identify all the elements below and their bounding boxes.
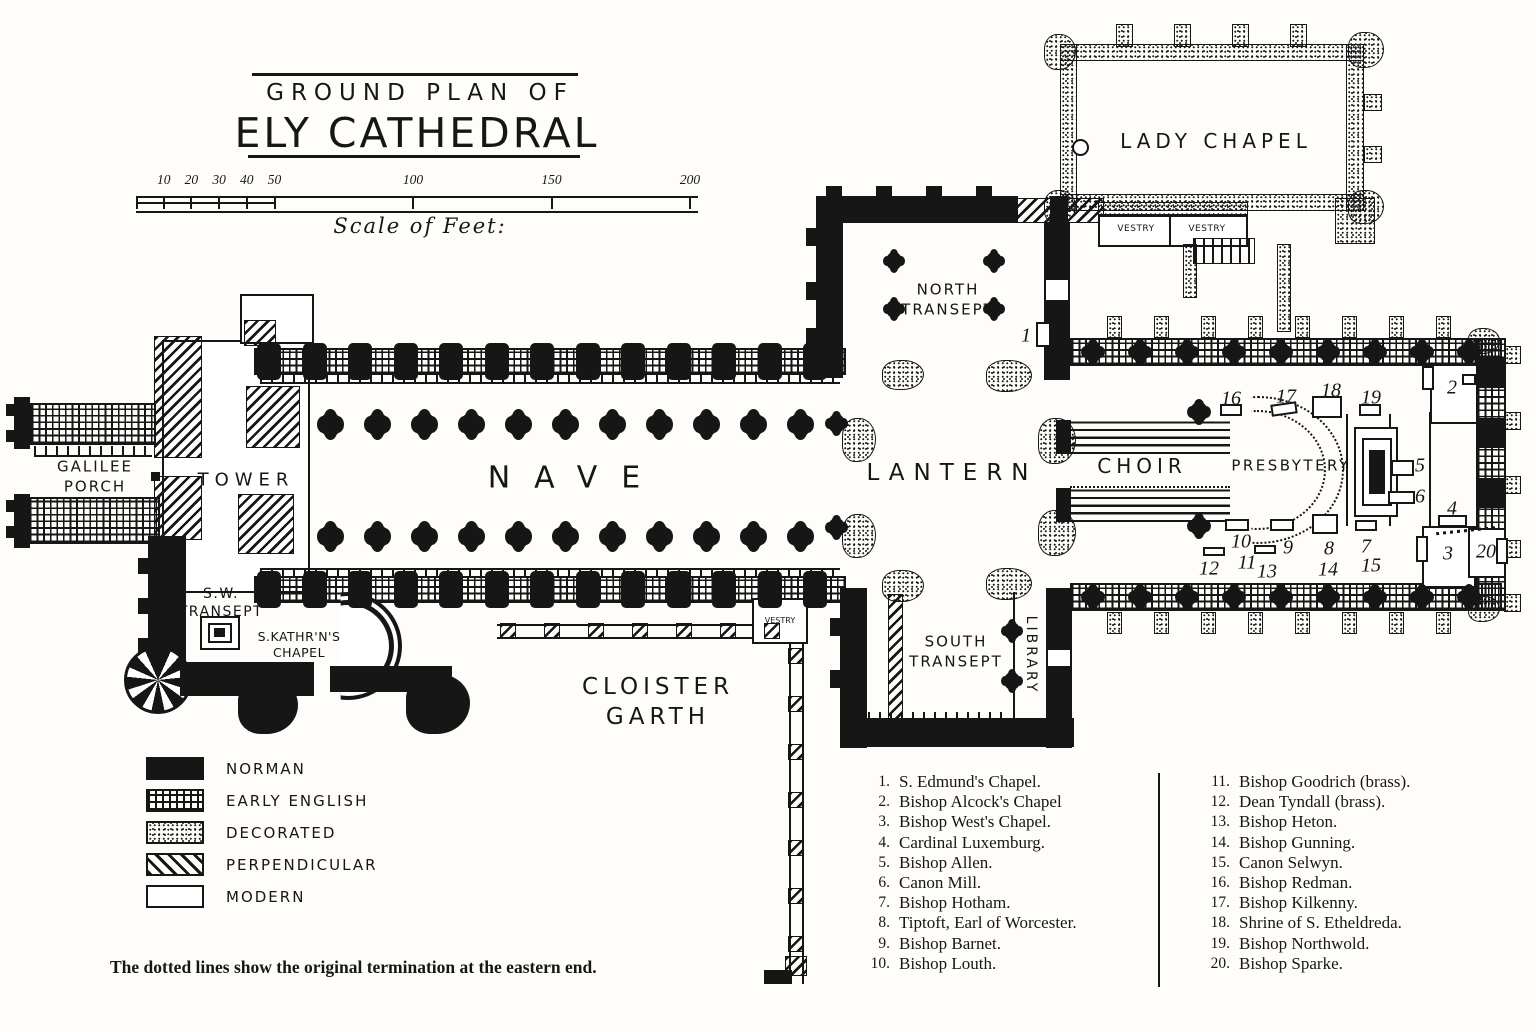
plan-wall-shape (888, 594, 903, 724)
plan-wall-shape (1044, 278, 1070, 302)
plan-wall-shape (1422, 366, 1434, 390)
cloister-wall-block (788, 888, 804, 904)
monument-row: 13.Bishop Heton. (1192, 812, 1528, 832)
plan-wall-shape (6, 430, 16, 442)
plan-wall-shape (1072, 139, 1089, 156)
choir-wall-pier (1413, 587, 1431, 607)
choir-wall-pier (1272, 587, 1290, 607)
plan-wall-shape (806, 228, 818, 246)
nave-buttress (621, 343, 645, 380)
choir-wall-pier (1084, 587, 1102, 607)
plan-wall-shape (886, 300, 902, 318)
choir-wall-pier (1460, 587, 1478, 607)
cloister-wall-block (788, 648, 804, 664)
plan-marker-2: 2 (1447, 377, 1457, 400)
room-label-cloister-garth: CLOISTER GARTH (582, 673, 734, 733)
plan-wall-shape (886, 252, 902, 270)
cloister-wall-block (676, 623, 692, 639)
nave-buttress (667, 343, 691, 380)
plan-wall-shape (1060, 44, 1364, 61)
cloister-wall-block (788, 792, 804, 808)
plan-wall-shape (1416, 536, 1428, 562)
plan-wall-shape (6, 404, 16, 416)
monument-name: Bishop Goodrich (brass). (1239, 772, 1410, 792)
choir-buttress (1248, 612, 1263, 634)
plan-wall-shape (1038, 418, 1076, 464)
plan-marker-5: 5 (1415, 455, 1425, 478)
plan-wall-shape (816, 196, 1018, 223)
room-label-nave: NAVE (488, 459, 665, 498)
plan-wall-shape (876, 186, 892, 198)
nave-buttress (712, 571, 736, 608)
plan-marker-3: 3 (1443, 543, 1453, 566)
plan-marker-19: 19 (1361, 387, 1381, 410)
plan-wall-shape (1038, 510, 1076, 556)
nave-column (743, 412, 764, 437)
plan-wall-shape (238, 678, 298, 734)
room-label-lady-chapel: LADY CHAPEL (1120, 128, 1312, 154)
plan-marker-20: 20 (1476, 541, 1496, 564)
plan-wall-shape (30, 403, 156, 445)
plan-wall-shape (1004, 672, 1020, 690)
nave-buttress (439, 571, 463, 608)
plan-wall-shape (1193, 238, 1255, 264)
monument-name: Bishop Kilkenny. (1239, 893, 1358, 913)
plan-wall-shape (1174, 24, 1191, 47)
plan-wall-shape (1391, 460, 1414, 476)
room-label-tower: TOWER (198, 468, 295, 491)
legend-row: DECORATED (146, 821, 378, 844)
plan-wall-shape (1462, 374, 1476, 385)
plan-wall-shape (14, 494, 30, 548)
choir-buttress (1201, 316, 1216, 338)
choir-buttress (1107, 612, 1122, 634)
room-label-vestry-cloister: VESTRY (765, 616, 795, 626)
plan-wall-shape (830, 618, 842, 636)
plan-wall-shape (986, 360, 1032, 392)
nave-buttress (485, 571, 509, 608)
monument-number: 12. (1192, 792, 1239, 812)
monument-number: 14. (1192, 833, 1239, 853)
choir-buttress (1154, 316, 1169, 338)
monument-name: Bishop Barnet. (899, 934, 1001, 954)
nave-column (790, 412, 811, 437)
plan-wall-shape (830, 670, 842, 688)
plan-wall-shape (138, 598, 150, 614)
plan-wall-shape (1346, 44, 1364, 211)
nave-column (367, 412, 388, 437)
monument-name: Canon Mill. (899, 873, 981, 893)
choir-buttress (1295, 316, 1310, 338)
monument-name: Bishop Alcock's Chapel (899, 792, 1062, 812)
nave-column (790, 524, 811, 549)
monument-row: 7.Bishop Hotham. (852, 893, 1152, 913)
monument-name: Bishop Sparke. (1239, 954, 1343, 974)
room-label-vestry-north-2: VESTRY (1188, 224, 1225, 236)
monument-row: 19.Bishop Northwold. (1192, 934, 1528, 954)
nave-column (461, 412, 482, 437)
nave-buttress (348, 571, 372, 608)
plan-wall-shape (1013, 592, 1015, 722)
plan-wall-shape (842, 514, 876, 558)
room-label-south-transept: SOUTH TRANSEPT (909, 633, 1003, 672)
room-label-lantern: LANTERN (866, 459, 1037, 489)
nave-buttress (712, 343, 736, 380)
cloister-wall-block (720, 623, 736, 639)
room-label-choir: CHOIR (1097, 453, 1187, 479)
plan-wall-shape (138, 558, 150, 574)
plan-wall-shape (330, 666, 452, 692)
plan-wall-shape (1388, 491, 1415, 504)
legend-label: NORMAN (226, 760, 306, 778)
plan-marker-1: 1 (1021, 325, 1031, 348)
choir-wall-pier (1178, 342, 1196, 362)
plan-wall-shape (1046, 666, 1072, 748)
legend-row: MODERN (146, 885, 378, 908)
plan-wall-shape (28, 497, 160, 544)
monument-number: 4. (852, 833, 899, 853)
nave-buttress (803, 343, 827, 380)
monument-row: 8.Tiptoft, Earl of Worcester. (852, 913, 1152, 933)
nave-column (696, 524, 717, 549)
ground-plan-page: GROUND PLAN OF ELY CATHEDRAL 10203040501… (0, 0, 1536, 1032)
plan-marker-11: 11 (1238, 552, 1257, 575)
monument-row: 5.Bishop Allen. (852, 853, 1152, 873)
nave-column (508, 524, 529, 549)
monument-row: 16.Bishop Redman. (1192, 873, 1528, 893)
legend-label: DECORATED (226, 824, 336, 842)
nave-buttress (758, 343, 782, 380)
nave-column (602, 412, 623, 437)
plan-wall-shape (1046, 648, 1072, 668)
plan-wall-shape (1478, 478, 1504, 508)
choir-buttress (1436, 612, 1451, 634)
choir-buttress (1295, 612, 1310, 634)
plan-wall-shape (1478, 358, 1504, 388)
monument-row: 2.Bishop Alcock's Chapel (852, 792, 1152, 812)
nave-column (367, 524, 388, 549)
choir-wall-pier (1225, 342, 1243, 362)
plan-marker-18: 18 (1321, 380, 1341, 403)
plan-wall-shape (1364, 94, 1382, 111)
plan-wall-shape (1050, 196, 1068, 234)
monuments-column-1: 1.S. Edmund's Chapel.2.Bishop Alcock's C… (852, 772, 1152, 974)
plan-wall-shape (1496, 538, 1508, 564)
monument-name: Bishop Allen. (899, 853, 993, 873)
nave-column (414, 412, 435, 437)
nave-column (555, 524, 576, 549)
monument-name: Bishop Gunning. (1239, 833, 1355, 853)
monument-number: 16. (1192, 873, 1239, 893)
room-label-galilee-porch: GALILEE PORCH (57, 458, 133, 497)
choir-buttress (1342, 316, 1357, 338)
choir-wall-pier (1413, 342, 1431, 362)
plan-wall-shape (806, 282, 818, 300)
plan-wall-shape (1369, 450, 1385, 494)
nave-buttress (303, 343, 327, 380)
plan-wall-shape (1046, 588, 1072, 650)
nave-buttress (621, 571, 645, 608)
cloister-wall-block (500, 623, 516, 639)
legend-swatch-perpendicular (146, 853, 204, 876)
monument-row: 14.Bishop Gunning. (1192, 833, 1528, 853)
plan-wall-shape (1254, 545, 1276, 554)
plan-wall-shape (1478, 418, 1504, 448)
nave-column (555, 412, 576, 437)
choir-wall-pier (1084, 342, 1102, 362)
plan-wall-shape (882, 360, 924, 390)
monument-name: Bishop Northwold. (1239, 934, 1369, 954)
choir-buttress (1107, 316, 1122, 338)
room-label-s-katharines: S.KATHR'N'S CHAPEL (258, 629, 341, 662)
legend-label: PERPENDICULAR (226, 856, 378, 874)
monument-row: 18.Shrine of S. Etheldreda. (1192, 913, 1528, 933)
plan-wall-shape (1064, 420, 1230, 454)
nave-buttress (530, 571, 554, 608)
monument-row: 1.S. Edmund's Chapel. (852, 772, 1152, 792)
plan-marker-9: 9 (1283, 537, 1293, 560)
plan-wall-shape (1232, 24, 1249, 47)
plan-wall-shape (6, 526, 16, 538)
plan-wall-shape (1036, 322, 1051, 347)
plan-wall-shape (828, 414, 845, 433)
monument-name: Tiptoft, Earl of Worcester. (899, 913, 1077, 933)
nave-buttress (485, 343, 509, 380)
monument-number: 15. (1192, 853, 1239, 873)
plan-wall-shape (1364, 146, 1382, 163)
plan-marker-16: 16 (1221, 388, 1241, 411)
monument-row: 15.Canon Selwyn. (1192, 853, 1528, 873)
monument-row: 12.Dean Tyndall (brass). (1192, 792, 1528, 812)
nave-buttress (803, 571, 827, 608)
monument-name: Bishop West's Chapel. (899, 812, 1051, 832)
monument-number: 1. (852, 772, 899, 792)
choir-wall-pier (1366, 587, 1384, 607)
plan-wall-shape (828, 518, 845, 537)
legend-swatch-decorated (146, 821, 204, 844)
plan-wall-shape (6, 500, 16, 512)
nave-buttress (394, 343, 418, 380)
plan-wall-shape (1355, 520, 1377, 531)
nave-buttress (530, 343, 554, 380)
monument-number: 20. (1192, 954, 1239, 974)
plan-wall-shape (1504, 476, 1521, 494)
choir-wall-pier (1131, 587, 1149, 607)
plan-marker-15: 15 (1361, 555, 1381, 578)
plan-wall-shape (1225, 519, 1249, 531)
plan-wall-shape (1504, 346, 1521, 364)
nave-buttress (576, 343, 600, 380)
plan-marker-4: 4 (1447, 498, 1457, 521)
monument-name: Bishop Heton. (1239, 812, 1337, 832)
plan-wall-shape (34, 446, 152, 457)
plan-marker-6: 6 (1415, 486, 1425, 509)
nave-buttress (439, 343, 463, 380)
plan-wall-shape (789, 644, 804, 984)
legend-row: EARLY ENGLISH (146, 789, 378, 812)
plan-wall-shape (976, 186, 992, 198)
plan-wall-shape (1504, 594, 1521, 612)
nave-column (320, 412, 341, 437)
monument-number: 7. (852, 893, 899, 913)
choir-wall-pier (1272, 342, 1290, 362)
nave-buttress (394, 571, 418, 608)
plan-wall-shape (214, 628, 225, 637)
monument-number: 9. (852, 934, 899, 954)
choir-buttress (1248, 316, 1263, 338)
monument-name: Bishop Hotham. (899, 893, 1010, 913)
choir-wall-pier (1178, 587, 1196, 607)
room-label-vestry-north-1: VESTRY (1117, 224, 1154, 236)
monument-name: Dean Tyndall (brass). (1239, 792, 1385, 812)
monument-number: 3. (852, 812, 899, 832)
plan-wall-shape (785, 956, 807, 976)
legend-swatch-modern (146, 885, 204, 908)
legend: NORMANEARLY ENGLISHDECORATEDPERPENDICULA… (146, 757, 378, 917)
monument-name: Canon Selwyn. (1239, 853, 1343, 873)
plan-wall-shape (840, 718, 1074, 747)
plan-marker-13: 13 (1257, 561, 1277, 584)
choir-buttress (1389, 316, 1404, 338)
legend-swatch-early-english (146, 789, 204, 812)
plan-wall-shape (1116, 24, 1133, 47)
nave-column (414, 524, 435, 549)
plan-wall-shape (1004, 622, 1020, 640)
plan-wall-shape (1183, 244, 1197, 298)
monument-row: 10.Bishop Louth. (852, 954, 1152, 974)
plan-wall-shape (1098, 202, 1248, 215)
cloister-wall-block (544, 623, 560, 639)
cloister-wall-block (788, 696, 804, 712)
plan-wall-shape (986, 568, 1032, 600)
plan-marker-14: 14 (1318, 559, 1338, 582)
nave-buttress (667, 571, 691, 608)
choir-wall-pier (1225, 587, 1243, 607)
monument-name: Bishop Louth. (899, 954, 996, 974)
plan-wall-shape (14, 397, 30, 449)
monument-number: 13. (1192, 812, 1239, 832)
plan-wall-shape (154, 336, 202, 458)
nave-column (649, 412, 670, 437)
nave-column (508, 412, 529, 437)
plan-wall-shape (1070, 486, 1230, 488)
monument-row: 6.Canon Mill. (852, 873, 1152, 893)
monument-name: Bishop Redman. (1239, 873, 1352, 893)
plan-wall-shape (1169, 215, 1171, 247)
monuments-divider (1158, 773, 1160, 987)
nave-buttress (576, 571, 600, 608)
choir-wall-pier (1131, 342, 1149, 362)
cloister-wall-block (788, 840, 804, 856)
plan-wall-shape (1504, 412, 1521, 430)
cloister-wall-block (632, 623, 648, 639)
nave-buttress (257, 343, 281, 380)
monument-row: 4.Cardinal Luxemburg. (852, 833, 1152, 853)
monument-number: 18. (1192, 913, 1239, 933)
monument-number: 11. (1192, 772, 1239, 792)
legend-label: EARLY ENGLISH (226, 792, 368, 810)
cloister-wall-block (788, 936, 804, 952)
choir-buttress (1154, 612, 1169, 634)
monument-number: 19. (1192, 934, 1239, 954)
monument-number: 2. (852, 792, 899, 812)
nave-column (743, 524, 764, 549)
nave-buttress (758, 571, 782, 608)
nave-buttress (348, 343, 372, 380)
plan-marker-8: 8 (1324, 538, 1334, 561)
choir-wall-pier (1366, 342, 1384, 362)
footnote: The dotted lines show the original termi… (110, 957, 597, 978)
nave-column (696, 412, 717, 437)
plan-wall-shape (1270, 519, 1294, 531)
monument-name: Cardinal Luxemburg. (899, 833, 1045, 853)
room-label-library: LIBRARY (1022, 616, 1040, 695)
plan-wall-shape (1429, 412, 1431, 526)
nave-buttress (303, 571, 327, 608)
cloister-wall-block (788, 744, 804, 760)
plan-wall-shape (238, 494, 294, 554)
choir-buttress (1389, 612, 1404, 634)
monument-number: 17. (1192, 893, 1239, 913)
legend-row: NORMAN (146, 757, 378, 780)
monument-number: 10. (852, 954, 899, 974)
choir-wall-pier (1460, 342, 1478, 362)
plan-wall-shape (842, 418, 876, 462)
choir-buttress (1436, 316, 1451, 338)
plan-wall-shape (1348, 32, 1384, 68)
plan-wall-shape (1190, 402, 1208, 422)
plan-wall-shape (926, 186, 942, 198)
nave-column (461, 524, 482, 549)
legend-label: MODERN (226, 888, 305, 906)
plan-wall-shape (986, 252, 1002, 270)
nave-column (320, 524, 341, 549)
room-label-north-transept: NORTH TRANSEPT (901, 281, 995, 320)
nave-column (649, 524, 670, 549)
monument-number: 8. (852, 913, 899, 933)
choir-buttress (1201, 612, 1216, 634)
plan-wall-shape (1203, 547, 1225, 556)
plan-marker-12: 12 (1199, 558, 1219, 581)
monument-row: 11.Bishop Goodrich (brass). (1192, 772, 1528, 792)
plan-wall-shape (246, 386, 300, 448)
plan-marker-17: 17 (1276, 386, 1296, 409)
plan-wall-shape (1190, 516, 1208, 536)
nave-column (602, 524, 623, 549)
plan-wall-shape (1290, 24, 1307, 47)
choir-wall-pier (1319, 342, 1337, 362)
cloister-wall-block (588, 623, 604, 639)
monument-row: 20.Bishop Sparke. (1192, 954, 1528, 974)
monument-number: 6. (852, 873, 899, 893)
plan-wall-shape (868, 712, 1008, 721)
plan-wall-shape (1277, 244, 1291, 332)
plan-marker-10: 10 (1231, 531, 1251, 554)
monument-name: Shrine of S. Etheldreda. (1239, 913, 1402, 933)
monument-number: 5. (852, 853, 899, 873)
room-label-sw-transept: S.W. TRANSEPT (179, 585, 264, 621)
monument-row: 9.Bishop Barnet. (852, 934, 1152, 954)
legend-swatch-norman (146, 757, 204, 780)
monument-name: S. Edmund's Chapel. (899, 772, 1041, 792)
choir-wall-pier (1319, 587, 1337, 607)
plan-wall-shape (1312, 514, 1338, 534)
monument-row: 3.Bishop West's Chapel. (852, 812, 1152, 832)
legend-row: PERPENDICULAR (146, 853, 378, 876)
plan-wall-shape (1335, 198, 1375, 244)
plan-wall-shape (1064, 488, 1230, 522)
monument-row: 17.Bishop Kilkenny. (1192, 893, 1528, 913)
